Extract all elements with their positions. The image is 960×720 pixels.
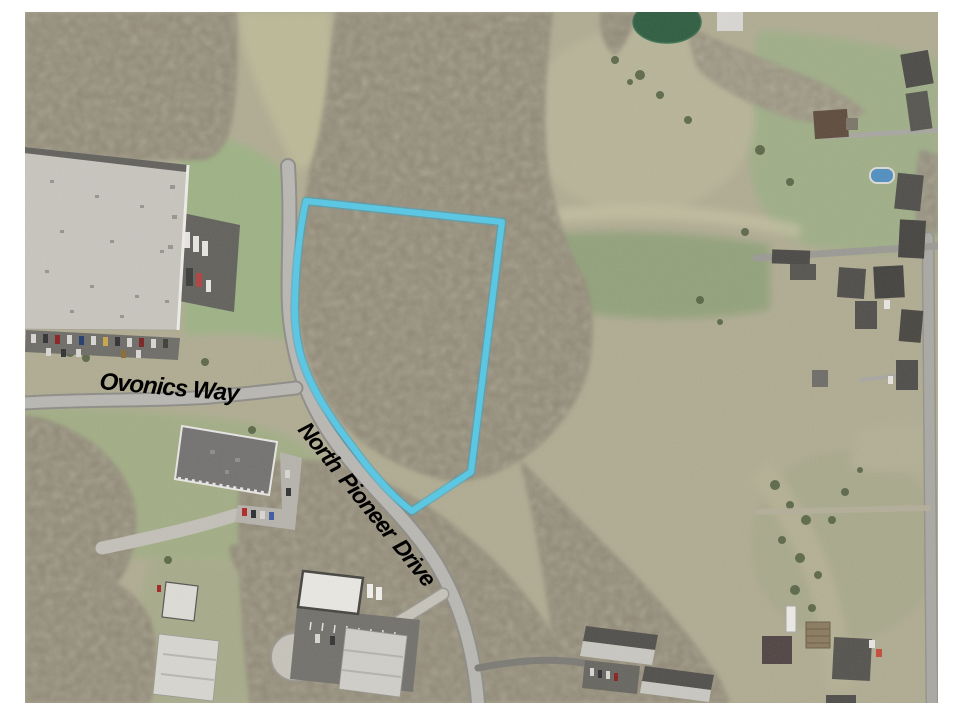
map-viewport: Ovonics Way North Pioneer Drive xyxy=(0,0,960,720)
aerial-map: Ovonics Way North Pioneer Drive xyxy=(0,0,960,720)
